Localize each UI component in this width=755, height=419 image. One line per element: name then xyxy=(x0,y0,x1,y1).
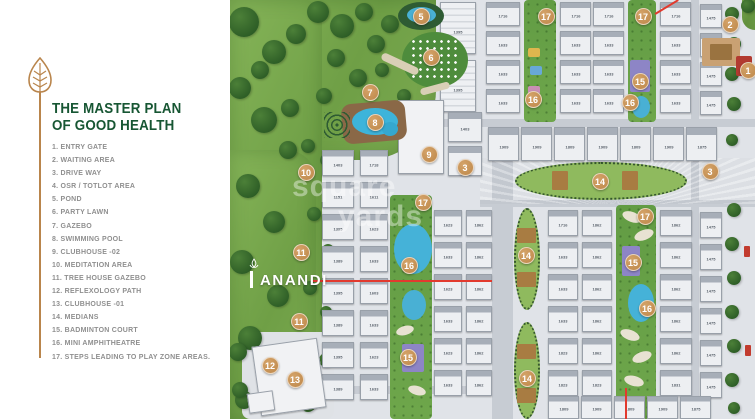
tree-icon xyxy=(725,237,739,251)
building-block: 1716 xyxy=(548,210,578,236)
building-label: 1475 xyxy=(707,103,716,108)
building-label: 1718 xyxy=(370,163,379,168)
legend-item: 14. MEDIANS xyxy=(52,314,210,321)
title-line-2: OF GOOD HEALTH xyxy=(52,118,181,135)
building-block: 1623 xyxy=(434,210,462,236)
legend-item: 6. PARTY LAWN xyxy=(52,209,210,216)
title-line-1: THE MASTER PLAN xyxy=(52,101,181,118)
building-block: 1862 xyxy=(660,242,692,268)
building-label: 1633 xyxy=(370,387,379,392)
building-label: 1395 xyxy=(334,291,343,296)
building-label: 1475 xyxy=(707,385,716,390)
building-block: 1623 xyxy=(434,274,462,300)
building-block: 1831 xyxy=(660,370,692,396)
building-block: 1909 xyxy=(521,127,552,161)
building-block: 1475 xyxy=(700,276,722,302)
legend-item: 2. WAITING AREA xyxy=(52,157,210,164)
pointer-line xyxy=(312,280,492,282)
leaf-icon xyxy=(27,57,53,93)
building-block: 1909 xyxy=(653,127,684,161)
master-plan-image: THE MASTER PLAN OF GOOD HEALTH 1. ENTRY … xyxy=(0,0,755,419)
amenity-shape xyxy=(745,345,751,356)
amenity-shape xyxy=(517,228,536,243)
building-block: 1633 xyxy=(548,306,578,332)
map-marker-14: 14 xyxy=(592,173,609,190)
building-label: 1633 xyxy=(571,43,580,48)
map-marker-15: 15 xyxy=(400,349,417,366)
building-label: 1475 xyxy=(707,289,716,294)
building-label: 1633 xyxy=(604,43,613,48)
building-label: 1475 xyxy=(707,225,716,230)
building-block: 1603 xyxy=(360,278,388,304)
page-title: THE MASTER PLAN OF GOOD HEALTH xyxy=(52,101,181,134)
building-block: 1862 xyxy=(582,210,612,236)
legend-item: 16. MINI AMPHITHEATRE xyxy=(52,340,210,347)
map-marker-7: 7 xyxy=(362,84,379,101)
legend-item: 8. SWIMMING POOL xyxy=(52,236,210,243)
amenity-shape xyxy=(710,44,732,60)
tree-icon xyxy=(727,97,741,111)
building-label: 1633 xyxy=(559,255,568,260)
tree-icon xyxy=(330,14,354,38)
map-marker-16: 16 xyxy=(622,94,639,111)
legend-item: 12. REFLEXOLOGY PATH xyxy=(52,288,210,295)
building-block: 1633 xyxy=(593,89,624,113)
building-label: 1633 xyxy=(499,101,508,106)
building-label: 1862 xyxy=(593,351,602,356)
watermark-word-1: square xyxy=(292,170,396,204)
building-label: 1633 xyxy=(370,323,379,328)
building-label: 1862 xyxy=(672,351,681,356)
building-label: 1395 xyxy=(334,355,343,360)
map-marker-14: 14 xyxy=(519,370,536,387)
building-block: 1389 xyxy=(322,310,354,336)
legend-item: 5. POND xyxy=(52,196,210,203)
building-block: 1633 xyxy=(560,31,591,55)
building-block: 1633 xyxy=(360,374,388,400)
map-marker-17: 17 xyxy=(538,8,555,25)
building-label: 1475 xyxy=(707,16,716,21)
legend-item: 17. STEPS LEADING TO PLAY ZONE AREAS. xyxy=(52,354,210,361)
amenity-shape xyxy=(382,122,398,136)
tree-icon xyxy=(728,402,740,414)
tree-icon xyxy=(725,373,739,387)
project-logo: ANANDI xyxy=(250,258,328,288)
map-marker-1: 1 xyxy=(740,62,755,79)
building-label: 1862 xyxy=(475,319,484,324)
map-marker-3: 3 xyxy=(702,163,719,180)
tree-icon xyxy=(307,207,321,221)
building-block: 1623 xyxy=(434,338,462,364)
map-marker-15: 15 xyxy=(625,254,642,271)
building-label: 1862 xyxy=(672,223,681,228)
map-marker-16: 16 xyxy=(525,91,542,108)
amenity-shape xyxy=(744,246,750,257)
building-label: 1603 xyxy=(370,291,379,296)
building-label: 1831 xyxy=(672,383,681,388)
legend-item: 7. GAZEBO xyxy=(52,223,210,230)
building-label: 1633 xyxy=(444,319,453,324)
building-label: 1862 xyxy=(593,255,602,260)
legend-item: 9. CLUBHOUSE -02 xyxy=(52,249,210,256)
meditation-spiral xyxy=(324,112,350,138)
building-block: 1633 xyxy=(660,60,691,84)
building-label: 1633 xyxy=(671,72,680,77)
tree-icon xyxy=(327,49,345,67)
building-block: 1633 xyxy=(434,306,462,332)
logo-bar xyxy=(250,271,253,288)
building-block: 1909 xyxy=(587,127,618,161)
building-block: 1633 xyxy=(593,31,624,55)
legend-item: 10. MEDITATION AREA xyxy=(52,262,210,269)
building-label: 1395 xyxy=(454,30,463,35)
building-label: 1909 xyxy=(499,144,508,149)
building-block: 1823 xyxy=(548,370,578,396)
tree-icon xyxy=(349,69,367,87)
building-label: 1909 xyxy=(664,144,673,149)
building-block: 1862 xyxy=(466,242,492,268)
amenity-shape xyxy=(517,272,536,287)
building-block xyxy=(247,390,276,413)
legend-item: 1. ENTRY GATE xyxy=(52,144,210,151)
building-block: 1475 xyxy=(700,372,722,398)
tree-icon xyxy=(262,40,286,64)
watermark-word-2: yards xyxy=(338,200,423,234)
building-block: 1809 xyxy=(548,396,579,419)
building-label: 1403 xyxy=(334,163,343,168)
tree-icon xyxy=(725,305,739,319)
tree-icon xyxy=(367,35,385,53)
building-label: 1633 xyxy=(671,101,680,106)
building-block: 1862 xyxy=(660,338,692,364)
building-label: 1909 xyxy=(592,407,601,412)
building-block: 1623 xyxy=(360,342,388,368)
building-block: 1716 xyxy=(593,2,624,26)
pointer-line xyxy=(625,388,627,419)
building-block: 1633 xyxy=(660,31,691,55)
building-label: 1809 xyxy=(559,407,568,412)
building-label: 1862 xyxy=(475,223,484,228)
building-label: 1475 xyxy=(707,257,716,262)
legend-item: 4. OSR / TOTLOT AREA xyxy=(52,183,210,190)
map-marker-3: 3 xyxy=(457,159,474,176)
map-marker-9: 9 xyxy=(421,146,438,163)
building-block: 1633 xyxy=(548,274,578,300)
building-label: 1633 xyxy=(571,101,580,106)
building-label: 1623 xyxy=(370,355,379,360)
tree-icon xyxy=(230,77,251,99)
building-block: 1862 xyxy=(466,274,492,300)
map-marker-16: 16 xyxy=(639,300,656,317)
building-block: 1862 xyxy=(466,306,492,332)
map-marker-15: 15 xyxy=(632,73,649,90)
building-label: 1862 xyxy=(593,287,602,292)
tree-icon xyxy=(375,63,389,77)
building-label: 1475 xyxy=(707,321,716,326)
building-block: 1403 xyxy=(448,112,482,142)
building-block: 1862 xyxy=(582,306,612,332)
building-label: 1862 xyxy=(593,223,602,228)
logo-text: ANANDI xyxy=(260,273,328,288)
building-block: 1875 xyxy=(686,127,717,161)
tree-icon xyxy=(236,174,260,198)
building-block: 1633 xyxy=(434,242,462,268)
amenity-shape xyxy=(402,290,426,320)
building-label: 1909 xyxy=(658,407,667,412)
building-block: 1475 xyxy=(700,4,722,28)
building-block: 1823 xyxy=(582,370,612,396)
tree-icon xyxy=(727,339,741,353)
building-block: 1862 xyxy=(660,274,692,300)
map-marker-17: 17 xyxy=(637,208,654,225)
building-label: 1633 xyxy=(559,287,568,292)
map-marker-5: 5 xyxy=(413,8,430,25)
building-block: 1875 xyxy=(680,396,711,419)
building-block: 1862 xyxy=(466,370,492,396)
site-map: square yards ANANDI 13951395171616331633… xyxy=(230,0,755,419)
tree-icon xyxy=(726,134,738,146)
building-label: 1403 xyxy=(461,127,470,132)
building-block: 1475 xyxy=(700,212,722,238)
building-label: 1633 xyxy=(499,72,508,77)
road xyxy=(691,0,699,419)
building-block: 1909 xyxy=(581,396,612,419)
building-label: 1809 xyxy=(631,144,640,149)
tree-icon xyxy=(316,88,332,104)
tree-icon xyxy=(279,141,297,159)
tree-icon xyxy=(251,61,269,79)
building-block: 1633 xyxy=(486,60,520,84)
legend-item: 11. TREE HOUSE GAZEBO xyxy=(52,275,210,282)
building-label: 1875 xyxy=(691,407,700,412)
building-label: 1716 xyxy=(499,14,508,19)
building-label: 1909 xyxy=(598,144,607,149)
building-label: 1475 xyxy=(707,353,716,358)
map-marker-8: 8 xyxy=(367,114,384,131)
building-label: 1862 xyxy=(475,287,484,292)
map-marker-11: 11 xyxy=(291,313,308,330)
tree-icon xyxy=(727,203,741,217)
map-marker-16: 16 xyxy=(401,257,418,274)
building-block: 1475 xyxy=(700,308,722,334)
building-label: 1395 xyxy=(454,88,463,93)
building-block: 1633 xyxy=(593,60,624,84)
building-block: 1862 xyxy=(660,306,692,332)
building-label: 1862 xyxy=(672,255,681,260)
building-block: 1909 xyxy=(488,127,519,161)
building-block: 1862 xyxy=(660,210,692,236)
tree-icon xyxy=(355,3,373,21)
amenity-shape xyxy=(552,171,568,190)
building-label: 1823 xyxy=(559,383,568,388)
building-label: 1633 xyxy=(604,72,613,77)
building-block: 1475 xyxy=(700,91,722,115)
leaf-stem-line xyxy=(39,92,41,358)
amenity-shape xyxy=(517,344,536,359)
building-label: 1633 xyxy=(571,72,580,77)
amenity-shape xyxy=(517,388,536,403)
map-marker-6: 6 xyxy=(423,49,440,66)
building-label: 1716 xyxy=(604,14,613,19)
building-block: 1862 xyxy=(466,210,492,236)
tree-icon xyxy=(230,7,259,37)
amenity-shape xyxy=(622,171,638,190)
building-label: 1862 xyxy=(475,255,484,260)
building-block: 1823 xyxy=(548,338,578,364)
amenity-shape xyxy=(528,48,540,57)
building-block: 1633 xyxy=(560,60,591,84)
map-marker-12: 12 xyxy=(262,357,279,374)
building-block: 1862 xyxy=(466,338,492,364)
building-block: 1633 xyxy=(560,89,591,113)
building-label: 1909 xyxy=(532,144,541,149)
building-label: 1633 xyxy=(671,43,680,48)
building-label: 1823 xyxy=(559,351,568,356)
building-block: 1809 xyxy=(614,396,645,419)
building-label: 1716 xyxy=(559,223,568,228)
building-block: 1633 xyxy=(434,370,462,396)
tree-icon xyxy=(727,271,741,285)
building-label: 1633 xyxy=(370,259,379,264)
building-label: 1875 xyxy=(697,144,706,149)
building-block: 1633 xyxy=(660,89,691,113)
building-label: 1623 xyxy=(444,351,453,356)
legend-item: 13. CLUBHOUSE -01 xyxy=(52,301,210,308)
building-label: 1862 xyxy=(593,319,602,324)
tree-icon xyxy=(251,107,277,133)
building-block: 1716 xyxy=(486,2,520,26)
legend-item: 3. DRIVE WAY xyxy=(52,170,210,177)
building-label: 1633 xyxy=(559,319,568,324)
building-label: 1809 xyxy=(565,144,574,149)
building-block: 1716 xyxy=(560,2,591,26)
building-label: 1823 xyxy=(593,383,602,388)
building-label: 1716 xyxy=(571,14,580,19)
legend-list: 1. ENTRY GATE2. WAITING AREA3. DRIVE WAY… xyxy=(52,144,210,367)
building-block: 1862 xyxy=(582,242,612,268)
building-block: 1633 xyxy=(548,242,578,268)
amenity-shape xyxy=(530,66,542,75)
legend-panel: THE MASTER PLAN OF GOOD HEALTH 1. ENTRY … xyxy=(0,0,230,419)
building-block: 1633 xyxy=(486,89,520,113)
building-block: 1633 xyxy=(360,246,388,272)
building-label: 1389 xyxy=(334,387,343,392)
logo-emblem-icon xyxy=(248,258,260,270)
tree-icon xyxy=(286,24,306,44)
map-marker-2: 2 xyxy=(722,16,739,33)
building-label: 1633 xyxy=(444,255,453,260)
building-label: 1862 xyxy=(672,287,681,292)
building-label: 1862 xyxy=(475,383,484,388)
tree-icon xyxy=(301,139,315,153)
tree-icon xyxy=(263,211,285,233)
map-marker-17: 17 xyxy=(635,8,652,25)
map-marker-14: 14 xyxy=(518,247,535,264)
building-block: 1809 xyxy=(620,127,651,161)
building-label: 1716 xyxy=(671,14,680,19)
building-label: 1633 xyxy=(499,43,508,48)
tree-icon xyxy=(232,382,248,398)
building-label: 1862 xyxy=(672,319,681,324)
building-label: 1862 xyxy=(475,351,484,356)
building-block: 1862 xyxy=(582,338,612,364)
building-label: 1623 xyxy=(444,223,453,228)
building-block: 1389 xyxy=(322,374,354,400)
building-block: 1633 xyxy=(360,310,388,336)
building-label: 1389 xyxy=(334,323,343,328)
building-block: 1909 xyxy=(647,396,678,419)
legend-item: 15. BADMINTON COURT xyxy=(52,327,210,334)
building-block: 1862 xyxy=(582,274,612,300)
building-label: 1623 xyxy=(444,287,453,292)
map-marker-13: 13 xyxy=(287,371,304,388)
building-block: 1633 xyxy=(486,31,520,55)
building-block: 1809 xyxy=(554,127,585,161)
building-label: 1475 xyxy=(707,74,716,79)
building-block: 1475 xyxy=(700,244,722,270)
tree-icon xyxy=(381,15,399,33)
building-block: 1395 xyxy=(322,342,354,368)
building-label: 1633 xyxy=(604,101,613,106)
tree-icon xyxy=(307,1,329,23)
tree-icon xyxy=(281,99,299,117)
building-block: 1475 xyxy=(700,340,722,366)
building-label: 1633 xyxy=(444,383,453,388)
building-label: 1389 xyxy=(334,259,343,264)
